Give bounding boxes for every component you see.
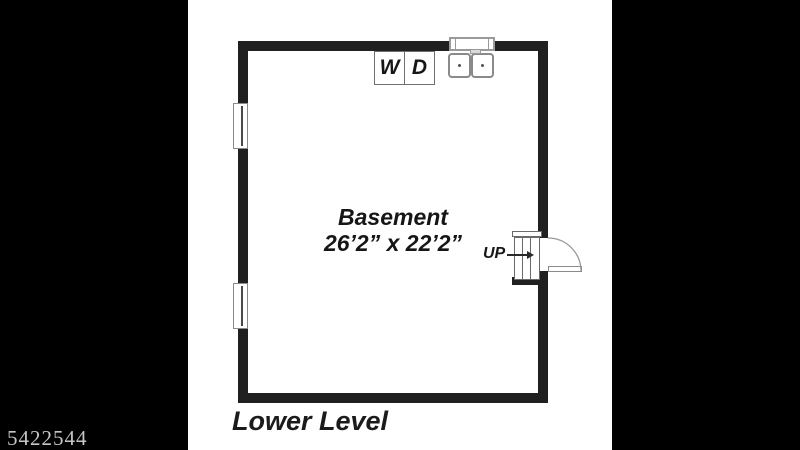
window-pane-line xyxy=(241,286,243,326)
window-pane-line xyxy=(241,106,243,146)
dryer-box: D xyxy=(404,51,435,85)
door-swing-arc-icon xyxy=(540,230,600,280)
up-arrow-head-icon xyxy=(527,251,534,259)
sink-drain-icon xyxy=(481,64,484,67)
window-icon-upper xyxy=(233,103,248,149)
sink-drain-icon xyxy=(458,64,461,67)
sink-basin-left-icon xyxy=(448,53,471,78)
sink-counter-edge xyxy=(488,39,489,49)
washer-box: W xyxy=(374,51,405,85)
washer-label: W xyxy=(380,56,400,80)
window-icon-lower xyxy=(233,283,248,329)
sink-counter-edge xyxy=(455,39,456,49)
room-label-block: Basement 26’2” x 22’2” xyxy=(258,204,528,256)
sink-basin-right-icon xyxy=(471,53,494,78)
wall-right-upper xyxy=(538,41,548,238)
room-dimensions: 26’2” x 22’2” xyxy=(258,230,528,256)
floorplan-image: 5422544 W D UP Basement xyxy=(0,0,800,450)
floor-level-title: Lower Level xyxy=(232,406,388,437)
wall-top xyxy=(238,41,548,51)
wall-bottom xyxy=(238,393,548,403)
wall-left xyxy=(238,41,248,403)
letterbox-right xyxy=(612,0,800,450)
letterbox-left xyxy=(0,0,188,450)
sink-faucet-icon xyxy=(470,49,481,54)
dryer-label: D xyxy=(412,56,427,80)
listing-id-watermark: 5422544 xyxy=(7,426,88,450)
room-name: Basement xyxy=(258,204,528,230)
wall-right-lower xyxy=(538,271,548,403)
